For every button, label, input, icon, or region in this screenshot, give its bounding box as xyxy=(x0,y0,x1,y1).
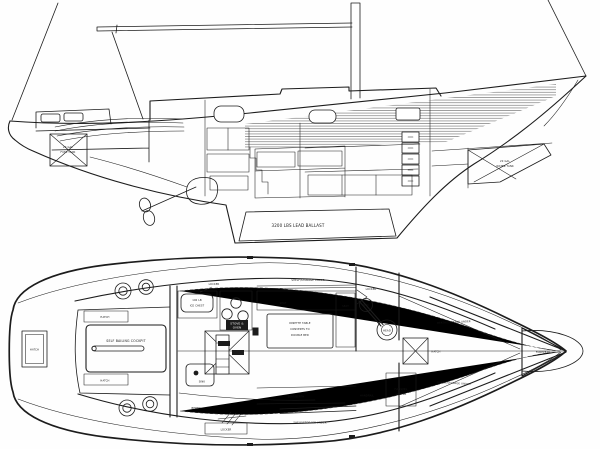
counter-door-2 xyxy=(298,151,342,166)
forestay-line xyxy=(548,0,586,76)
foreberth-lines xyxy=(432,143,552,166)
label-galley-sink: SINK xyxy=(199,380,206,384)
water-tank-cross xyxy=(468,144,544,182)
engine-mark-1 xyxy=(218,341,230,346)
dinette-table xyxy=(267,314,333,348)
label-cockpit: SELF BAILING COCKPIT xyxy=(106,339,145,343)
mast-section xyxy=(253,328,259,336)
label-hanging-1: HANGING xyxy=(395,387,408,391)
engine-control-line xyxy=(90,157,187,187)
cabin-window-2 xyxy=(309,110,336,123)
fuel-tank-label-1: 20 GAL xyxy=(63,145,73,149)
coaming-outline xyxy=(36,109,111,128)
label-ice-chest-1: 100 LB xyxy=(192,298,202,302)
sailboat-plans-drawing: 3200 LBS LEAD BALLAST 20 GAL FUEL TANK xyxy=(0,0,600,449)
cockpit: SELF BAILING COCKPIT HATCH HATCH xyxy=(75,307,170,395)
ballast: 3200 LBS LEAD BALLAST xyxy=(239,209,396,241)
ladder xyxy=(216,335,229,374)
label-hatch-top: HATCH xyxy=(100,315,109,319)
coaming-window-2 xyxy=(64,113,83,121)
counter-door-1 xyxy=(257,152,295,167)
label-quarter-berth: BERTH xyxy=(191,406,200,410)
label-hatch-bottom: HATCH xyxy=(100,379,109,383)
fuel-tank-label-2: FUEL TANK xyxy=(61,150,76,154)
label-shelf-top: SHELF/STORAGE UNDER xyxy=(291,278,324,282)
drawer-stack xyxy=(402,132,419,186)
sink-drain xyxy=(194,371,199,376)
mainsheet-line xyxy=(112,32,143,119)
galley-cabinet-mid xyxy=(207,154,249,172)
water-tank-box xyxy=(468,144,551,184)
settee-lockers xyxy=(308,175,412,195)
label-ice-chest-2: ICE CHEST xyxy=(190,304,205,308)
burner-2 xyxy=(222,309,232,319)
boom xyxy=(97,23,352,33)
plan-view: HATCH SELF BAILING COCKPIT HATCH HATCH L… xyxy=(9,256,583,446)
companionway-bulkhead xyxy=(170,286,177,417)
tiller xyxy=(92,346,144,351)
label-vberth-lower: BERTH/STORAGE UNDER xyxy=(437,380,471,386)
label-forepeak: FOREPEAK xyxy=(536,350,551,354)
engine-mark-2 xyxy=(232,350,244,355)
cabin-window-1 xyxy=(214,106,244,122)
label-locker-aft: LOCKER xyxy=(221,428,232,432)
drawing-canvas: 3200 LBS LEAD BALLAST 20 GAL FUEL TANK xyxy=(0,0,600,449)
engine-blob xyxy=(186,178,217,205)
label-dinette-3: DOUBLE BED xyxy=(291,333,309,337)
forepeak-bow: FOREPEAK xyxy=(522,328,583,376)
winch-4 xyxy=(143,397,158,412)
winch-2-drum xyxy=(142,283,150,291)
rudder-post xyxy=(92,346,96,350)
tick-2 xyxy=(349,263,355,266)
water-tank-label-1: 20 GAL xyxy=(500,159,510,163)
tick-4 xyxy=(349,435,355,438)
label-locker-galley: LOCKER xyxy=(209,282,220,286)
cockpit-seat-lines xyxy=(36,120,150,162)
winches xyxy=(115,280,157,416)
label-fwd-hatch: HATCH xyxy=(431,350,440,354)
label-seat-aft: SEAT xyxy=(280,301,287,305)
burner-3 xyxy=(238,311,248,321)
label-dinette-1: DINETTE TABLE xyxy=(289,321,310,325)
stern-hatch: HATCH xyxy=(22,331,47,367)
ice-chest xyxy=(181,294,213,312)
label-stove-2: OVEN xyxy=(233,326,242,330)
coaming-window-1 xyxy=(41,114,60,122)
galley-drawer xyxy=(210,176,248,190)
water-tank-label-2: WATER TANK xyxy=(496,164,514,168)
mast xyxy=(351,3,360,99)
backstay-line xyxy=(12,3,58,120)
shelf-rail-top xyxy=(257,285,356,289)
tick-3 xyxy=(247,443,253,446)
cabin-window-3 xyxy=(396,108,420,120)
label-handrail: HANDRAIL xyxy=(360,394,375,398)
label-shelf-bottom: SHELF/STORAGE UNDER xyxy=(293,421,326,425)
stern-cockpit xyxy=(36,109,184,162)
label-seat-fwd: SEAT xyxy=(342,304,349,308)
water-tank: 20 GAL WATER TANK xyxy=(468,144,551,184)
label-seat-berth: SEAT/BERTH xyxy=(288,395,305,399)
ballast-label: 3200 LBS LEAD BALLAST xyxy=(272,223,325,228)
label-locker-head: LOCKER xyxy=(366,287,377,291)
label-hatch-stern: HATCH xyxy=(30,348,39,352)
settee-locker-dividers xyxy=(342,175,376,195)
cockpit-well xyxy=(86,325,166,372)
label-head: HEAD xyxy=(383,328,391,332)
label-hanging-2: LOCKER xyxy=(396,392,407,396)
label-dinette-2: CONVERTS TO xyxy=(290,327,309,331)
tick-1 xyxy=(247,256,253,259)
profile-view: 3200 LBS LEAD BALLAST 20 GAL FUEL TANK xyxy=(8,0,586,243)
winch-4-drum xyxy=(146,400,154,408)
